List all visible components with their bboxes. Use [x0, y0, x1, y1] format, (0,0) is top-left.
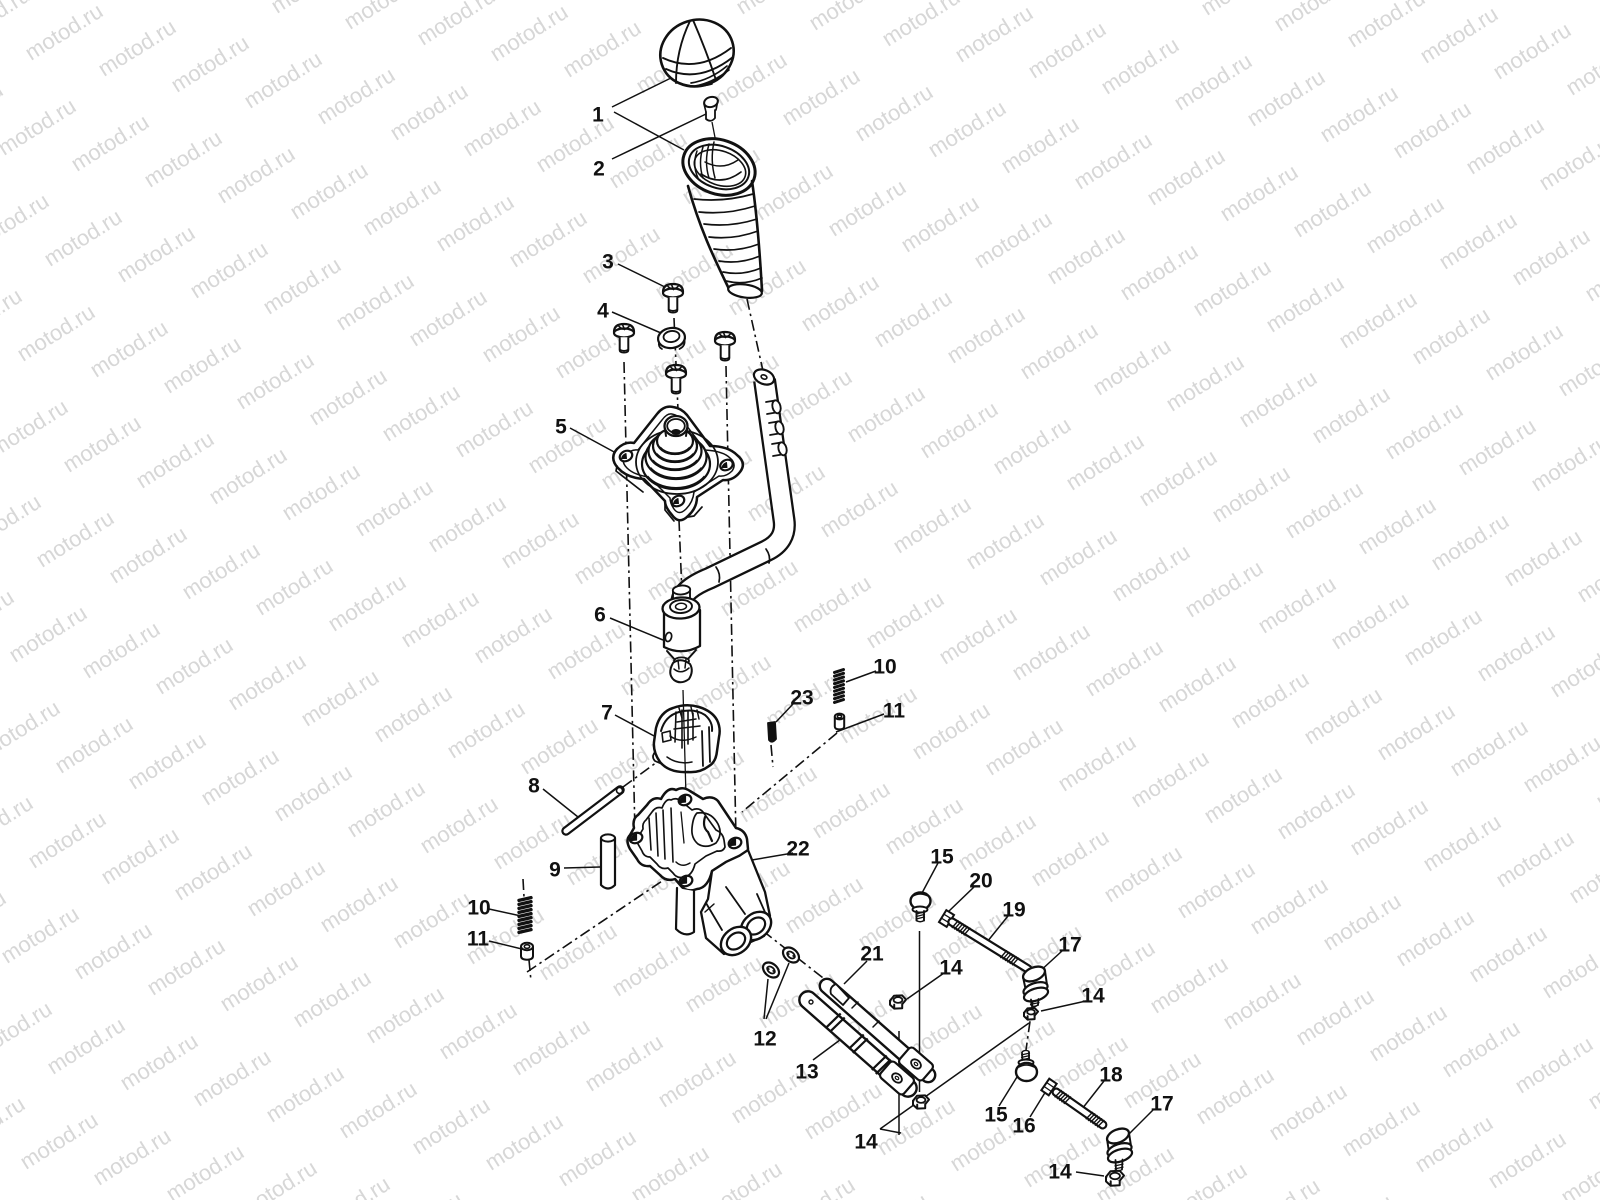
svg-text:22: 22	[786, 838, 809, 861]
svg-text:15: 15	[930, 846, 954, 869]
svg-text:9: 9	[549, 859, 561, 882]
svg-text:14: 14	[1081, 985, 1105, 1008]
svg-text:19: 19	[1002, 899, 1025, 922]
svg-text:12: 12	[753, 1028, 776, 1051]
svg-text:4: 4	[597, 300, 609, 323]
svg-text:6: 6	[594, 604, 606, 627]
svg-text:10: 10	[873, 656, 896, 679]
svg-text:15: 15	[984, 1104, 1008, 1127]
svg-text:3: 3	[602, 251, 614, 274]
svg-text:10: 10	[467, 897, 490, 920]
svg-text:14: 14	[939, 957, 963, 980]
svg-text:8: 8	[528, 775, 540, 798]
svg-text:1: 1	[592, 104, 604, 127]
svg-text:14: 14	[854, 1131, 878, 1154]
svg-text:16: 16	[1012, 1115, 1035, 1138]
svg-text:11: 11	[883, 700, 906, 723]
svg-text:11: 11	[467, 928, 490, 951]
svg-text:5: 5	[555, 416, 567, 439]
svg-text:17: 17	[1150, 1093, 1173, 1116]
svg-text:23: 23	[790, 687, 813, 710]
svg-text:18: 18	[1099, 1064, 1123, 1087]
svg-text:21: 21	[860, 943, 884, 966]
svg-text:2: 2	[593, 158, 605, 181]
svg-text:13: 13	[795, 1061, 818, 1084]
svg-text:14: 14	[1048, 1161, 1072, 1184]
svg-text:20: 20	[969, 870, 992, 893]
svg-text:17: 17	[1058, 934, 1081, 957]
svg-text:7: 7	[601, 702, 613, 725]
